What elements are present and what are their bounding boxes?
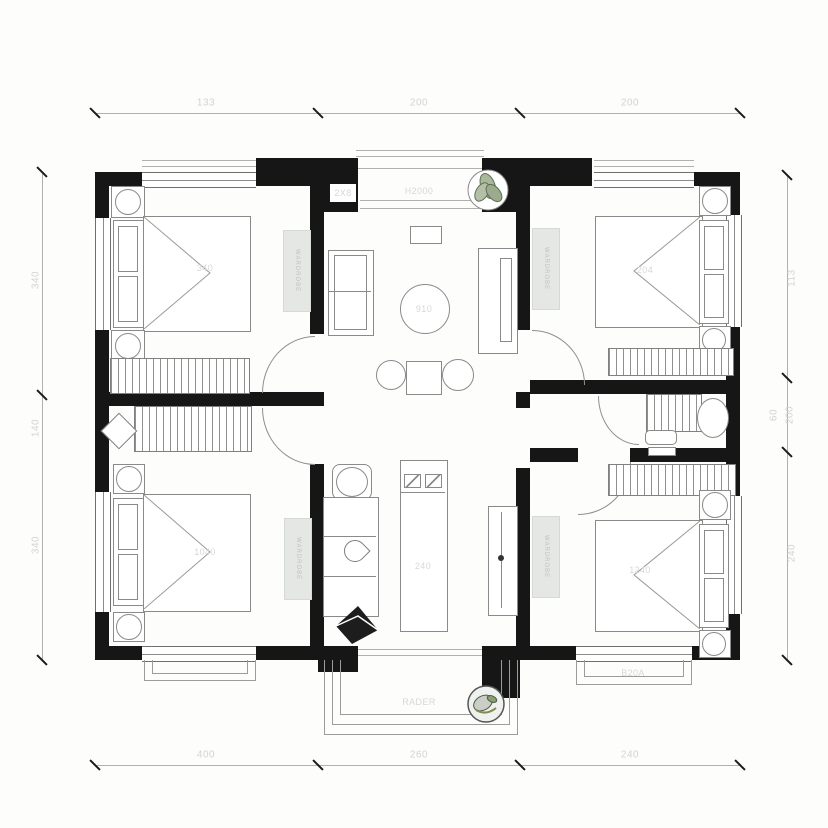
closet-stripes	[110, 358, 250, 394]
wall	[630, 448, 740, 462]
window-sill	[142, 160, 256, 161]
pantry-panel	[488, 506, 518, 616]
sofa-divider	[329, 291, 371, 292]
dim-label: 60	[769, 409, 780, 421]
lamp	[115, 333, 141, 359]
wardrobe-label: WARDROBE	[295, 537, 301, 580]
wardrobe: WARDROBE	[532, 516, 560, 598]
sofa-cushion	[334, 255, 367, 330]
window	[594, 172, 694, 188]
door-arc	[532, 330, 585, 385]
wall	[516, 392, 530, 408]
wardrobe: WARDROBE	[532, 228, 560, 310]
window-label: B20A	[621, 668, 645, 678]
counter-divider	[324, 536, 376, 537]
dim-label: 340	[31, 536, 42, 554]
wall	[95, 646, 142, 660]
sliding-door	[360, 200, 480, 201]
pillow	[118, 276, 138, 322]
dim-label: 200	[410, 98, 428, 109]
wall	[516, 186, 530, 330]
dim-label: 400	[197, 750, 215, 761]
dim-label: 200	[785, 406, 796, 424]
closet-stripes	[134, 406, 252, 452]
burner-icon	[425, 474, 442, 488]
dim-label: 340	[31, 271, 42, 289]
wardrobe: WARDROBE	[283, 230, 311, 312]
sliding-door	[360, 208, 480, 209]
blanket-fold	[144, 217, 214, 329]
pillow	[704, 226, 724, 270]
wall	[95, 392, 324, 406]
room-label: 1040	[194, 547, 216, 557]
sink	[336, 467, 368, 497]
pillow	[118, 554, 138, 600]
dining-chair	[442, 359, 474, 391]
wall	[256, 158, 320, 186]
balcony-railing	[356, 168, 484, 169]
floor-plan: 133 200 200 400 260 240 340 140 340 113 …	[0, 0, 828, 828]
door-arc	[262, 336, 315, 393]
dim-label: 260	[410, 750, 428, 761]
dim-label: 200	[621, 98, 639, 109]
balcony-side-label: 2X8	[334, 188, 351, 198]
dining-table	[406, 361, 442, 395]
lamp	[116, 466, 142, 492]
window	[95, 218, 111, 330]
wall	[530, 448, 578, 462]
vanity	[645, 430, 677, 445]
dim-label: 140	[31, 419, 42, 437]
wall	[520, 646, 576, 660]
table-label: 910	[416, 304, 432, 314]
dim-label: 133	[197, 98, 215, 109]
pillow	[118, 504, 138, 550]
lamp	[702, 492, 728, 518]
dining-chair	[376, 360, 406, 390]
dim-line-bottom	[95, 765, 740, 766]
balcony-railing	[356, 156, 484, 157]
island-label: 240	[415, 561, 431, 571]
stool	[334, 604, 380, 646]
wall	[518, 158, 592, 186]
balcony-label: RADER	[402, 697, 436, 707]
door-arc	[598, 396, 639, 445]
dim-line-top	[95, 113, 740, 114]
balcony-label: H2000	[405, 186, 434, 196]
toilet	[697, 398, 729, 438]
lamp	[116, 614, 142, 640]
wall	[256, 646, 320, 660]
dim-label: 240	[787, 544, 798, 562]
window-sill	[594, 160, 694, 161]
door-arc	[262, 408, 315, 465]
window-sill	[152, 660, 248, 674]
wardrobe-label: WARDROBE	[294, 249, 300, 292]
dim-label: 113	[787, 269, 798, 286]
window-sill	[594, 166, 694, 167]
island-divider	[401, 492, 445, 493]
window	[95, 492, 111, 612]
pillow	[704, 578, 724, 622]
cabinet-shelf	[500, 258, 512, 342]
closet-stripes	[608, 348, 734, 376]
wall	[516, 468, 530, 646]
dim-label: 240	[621, 750, 639, 761]
bath-mat	[648, 447, 676, 456]
window-sill	[142, 166, 256, 167]
room-label: 204	[637, 265, 653, 275]
window	[142, 172, 256, 188]
pillow	[704, 274, 724, 318]
tv-cabinet	[478, 248, 518, 354]
counter-divider	[324, 576, 376, 577]
dim-line-left	[42, 172, 43, 660]
sliding-door	[358, 649, 482, 650]
pillow	[118, 226, 138, 272]
blanket-fold	[630, 521, 700, 629]
lamp	[702, 632, 726, 656]
lamp	[115, 189, 141, 215]
room-label: 340	[197, 263, 213, 273]
wall	[310, 464, 324, 646]
door-knob	[498, 555, 504, 561]
wardrobe-label: WARDROBE	[543, 247, 549, 290]
plant-icon	[466, 684, 506, 724]
room-label: 1240	[629, 565, 651, 575]
pillow	[704, 530, 724, 574]
plant-icon	[466, 168, 510, 212]
wardrobe-label: WARDROBE	[543, 535, 549, 578]
burner-icon	[404, 474, 421, 488]
balcony-railing	[356, 150, 484, 151]
wall	[310, 186, 324, 334]
wardrobe: WARDROBE	[284, 518, 312, 600]
sliding-door	[358, 655, 482, 656]
shower-stripes	[646, 394, 702, 432]
tv	[410, 226, 442, 244]
lamp	[702, 188, 728, 214]
